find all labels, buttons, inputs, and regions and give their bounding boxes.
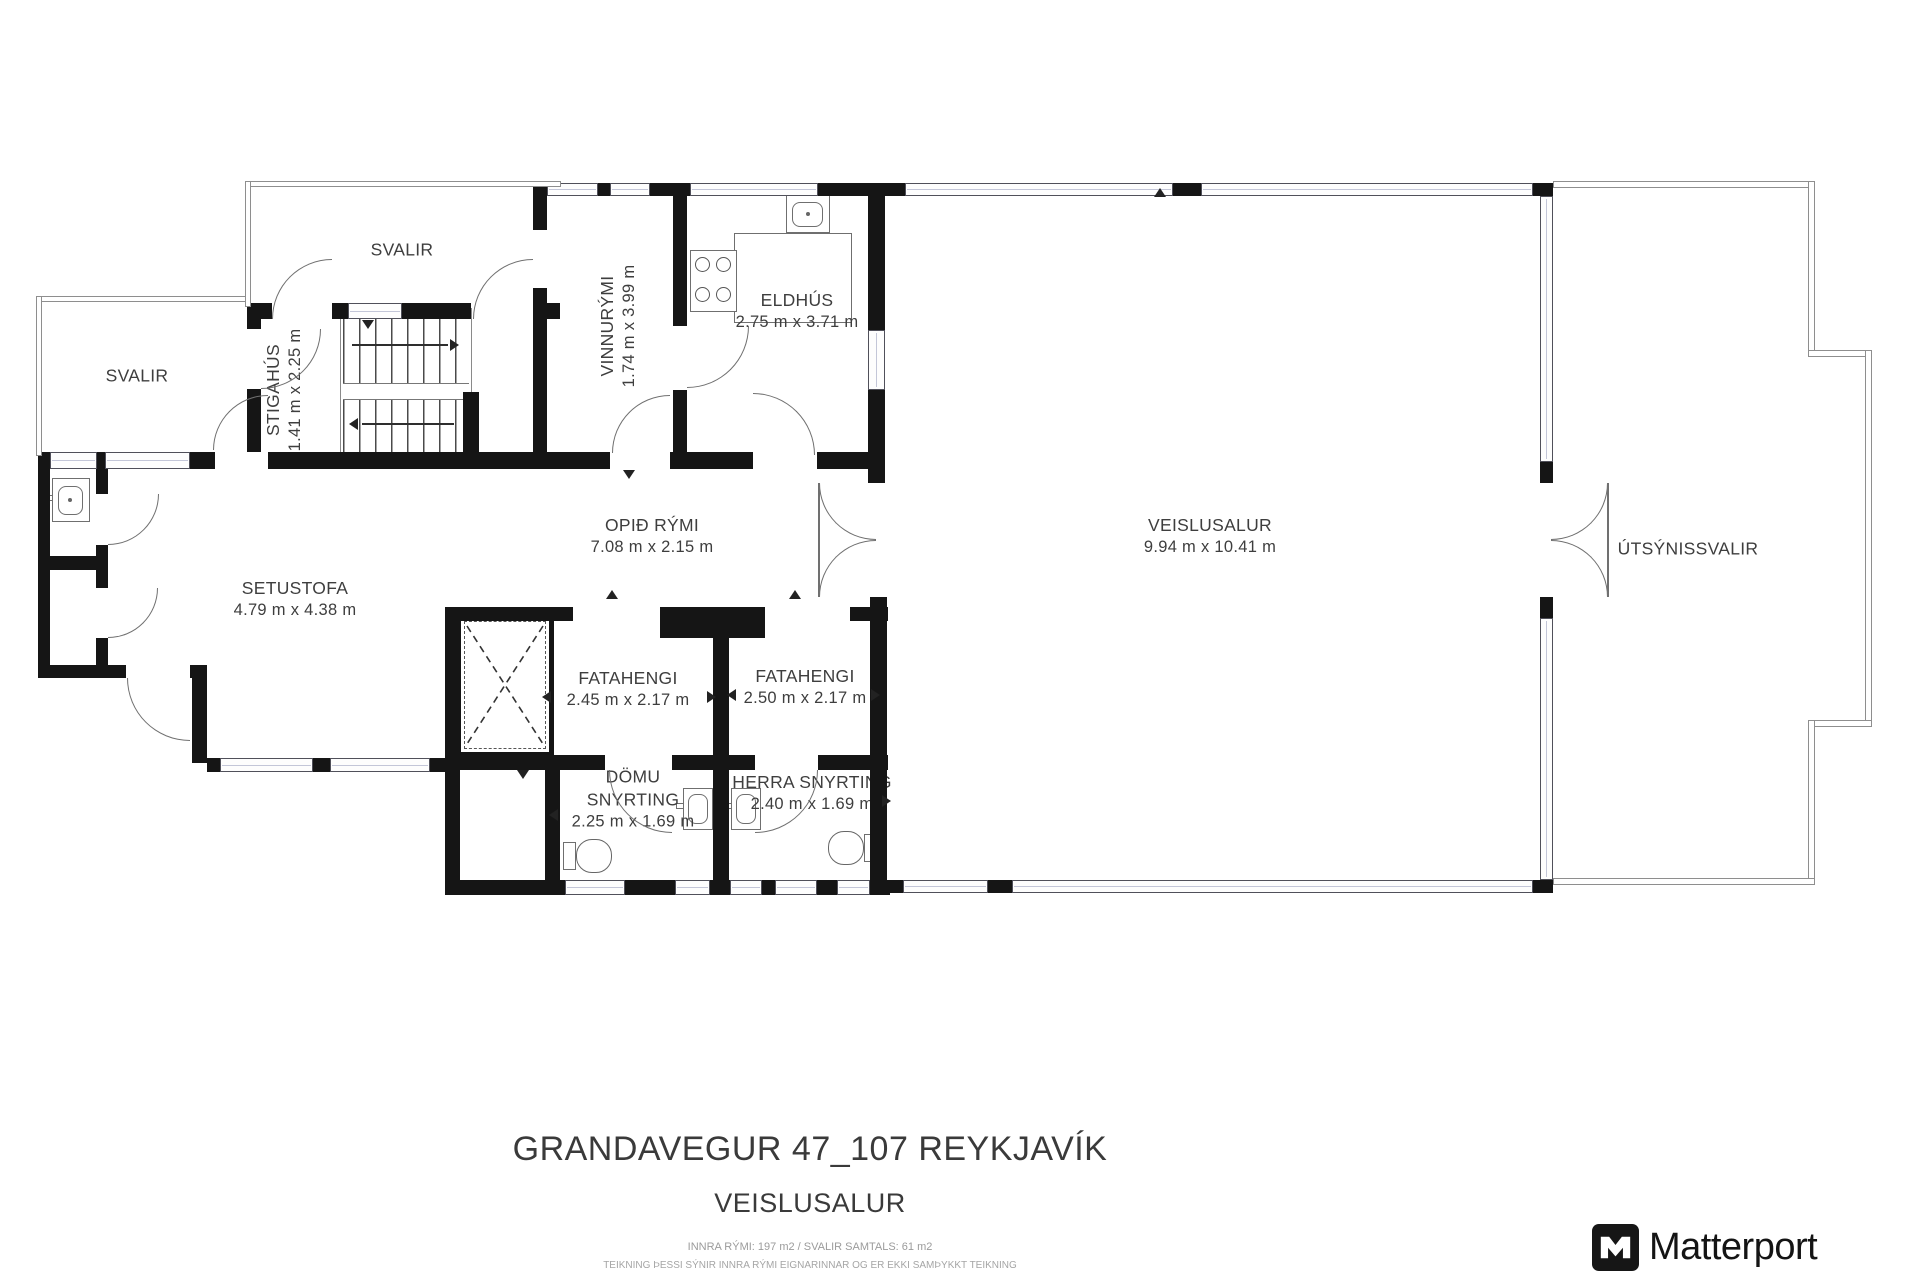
window — [348, 303, 402, 319]
wall-segment — [402, 303, 471, 319]
window — [105, 452, 190, 469]
door-arc — [755, 770, 818, 833]
direction-marker — [727, 689, 736, 701]
wall-segment — [533, 183, 547, 230]
balcony-railing — [245, 181, 251, 307]
wall-segment — [533, 319, 547, 452]
balcony-railing — [1808, 720, 1872, 727]
elevator-x-icon — [461, 618, 549, 752]
balcony-railing — [1553, 878, 1815, 885]
wall-segment — [445, 607, 573, 621]
direction-marker — [871, 689, 880, 701]
direction-marker — [789, 590, 801, 599]
wall-segment — [817, 880, 837, 895]
wall-segment — [533, 303, 560, 319]
door-arc — [272, 259, 332, 319]
wall-segment — [1173, 183, 1201, 196]
stair-treads-lower — [343, 399, 469, 454]
wall-segment — [207, 758, 220, 772]
balcony-railing — [1808, 720, 1815, 885]
wall-segment — [445, 880, 565, 895]
wall-segment — [870, 597, 887, 887]
wall-segment — [192, 678, 207, 763]
door-arc — [261, 329, 321, 389]
wall-segment — [625, 880, 675, 895]
window — [905, 183, 1173, 196]
window — [50, 452, 97, 469]
wall-segment — [268, 452, 610, 469]
door-arc — [753, 393, 815, 455]
window — [730, 880, 762, 895]
wall-segment — [533, 288, 547, 303]
ladies-toilet-icon — [576, 839, 612, 873]
window — [565, 880, 625, 895]
wall-segment — [890, 880, 903, 893]
door-leaf — [1607, 483, 1609, 597]
door-arc — [1551, 483, 1608, 540]
floor-plan: SVALIR SVALIR STIGAHÚS 1.41 m x 2.25 m V… — [0, 0, 1920, 1280]
room-label-svalir-top: SVALIR — [371, 239, 434, 262]
wall-segment — [96, 469, 108, 494]
window — [1540, 196, 1553, 462]
window — [837, 880, 870, 895]
wall-segment — [190, 452, 215, 469]
door-arc — [108, 494, 159, 545]
wall-segment — [190, 665, 207, 678]
wall-segment — [868, 469, 885, 483]
direction-marker — [517, 770, 529, 779]
direction-marker — [450, 339, 459, 351]
matterport-logo-text: Matterport — [1649, 1226, 1817, 1269]
wall-segment — [670, 452, 753, 469]
stove-icon — [690, 250, 737, 312]
matterport-logo-icon — [1592, 1224, 1639, 1271]
balcony-railing — [1553, 181, 1815, 188]
window — [330, 758, 430, 772]
room-label-eldhus: ELDHÚS 2.75 m x 3.71 m — [736, 289, 859, 333]
room-label-setustofa: SETUSTOFA 4.79 m x 4.38 m — [234, 577, 357, 621]
wall-segment — [247, 319, 261, 329]
wall-segment — [885, 183, 905, 196]
door-arc — [612, 395, 670, 453]
wall-segment — [818, 183, 885, 196]
wall-segment — [430, 758, 445, 772]
wall-segment — [868, 196, 885, 330]
window — [1201, 183, 1533, 196]
wall-segment — [713, 638, 729, 895]
wall-segment — [762, 880, 775, 895]
mens-toilet-icon — [828, 831, 864, 865]
balcony-railing — [1865, 350, 1872, 727]
direction-marker — [606, 590, 618, 599]
wall-segment — [598, 183, 610, 196]
floor-subtitle: VEISLUSALUR — [714, 1188, 906, 1219]
staircase — [340, 308, 472, 456]
balcony-railing — [1808, 350, 1872, 357]
direction-marker — [549, 809, 558, 821]
page-title: GRANDAVEGUR 47_107 REYKJAVÍK — [513, 1130, 1108, 1169]
wall-segment — [38, 469, 50, 678]
wall-segment — [1540, 462, 1553, 483]
wall-segment — [545, 755, 560, 895]
window — [1540, 618, 1553, 880]
wall-segment — [650, 183, 690, 196]
door-arc — [108, 588, 158, 638]
wall-segment — [445, 607, 460, 895]
balcony-railing — [36, 296, 42, 456]
door-arc — [819, 540, 876, 597]
wall-segment — [38, 665, 126, 678]
balcony-railing — [245, 181, 561, 187]
ladies-toilet-tank — [563, 842, 576, 870]
room-label-veislusalur: VEISLUSALUR 9.94 m x 10.41 m — [1144, 514, 1276, 558]
door-arc — [1551, 540, 1608, 597]
door-arc — [819, 483, 876, 540]
window — [775, 880, 817, 895]
direction-marker — [349, 418, 358, 430]
wall-segment — [673, 390, 687, 452]
direction-marker — [1154, 188, 1166, 197]
elevator — [456, 613, 554, 757]
direction-marker — [542, 691, 551, 703]
wall-segment — [445, 755, 605, 770]
room-label-opid-rymi: OPIÐ RÝMI 7.08 m x 2.15 m — [591, 514, 714, 558]
room-label-fatahengi-1: FATAHENGI 2.45 m x 2.17 m — [567, 667, 690, 711]
wall-segment — [1540, 597, 1553, 618]
area-summary: INNRA RÝMI: 197 m2 / SVALIR SAMTALS: 61 … — [688, 1241, 933, 1253]
balcony-railing — [1808, 181, 1815, 357]
window — [690, 183, 818, 196]
wall-segment — [868, 390, 885, 452]
disclaimer-text: TEIKNING ÞESSI SÝNIR INNRA RÝMI EIGNARIN… — [603, 1260, 1017, 1271]
wall-segment — [97, 452, 105, 469]
kitchen-sink-drain — [806, 212, 810, 216]
room-label-utsynissvalir: ÚTSÝNISSVALIR — [1618, 538, 1759, 561]
direction-marker — [623, 470, 635, 479]
window — [220, 758, 313, 772]
direction-marker — [362, 320, 374, 329]
door-arc — [127, 678, 190, 741]
room-label-vinnurymi: VINNURÝMI 1.74 m x 3.99 m — [596, 265, 640, 388]
door-arc — [473, 259, 533, 319]
wall-segment — [1533, 183, 1553, 196]
door-arc — [213, 395, 268, 450]
matterport-logo: Matterport — [1592, 1224, 1817, 1271]
balcony-railing — [36, 296, 250, 302]
wall-segment — [1533, 880, 1553, 893]
window — [868, 330, 885, 390]
window — [675, 880, 710, 895]
door-arc — [687, 326, 749, 388]
wall-segment — [673, 196, 687, 326]
wall-segment — [710, 880, 730, 895]
wall-segment — [660, 607, 765, 638]
wall-segment — [672, 755, 713, 770]
wall-segment — [96, 545, 108, 588]
direction-marker — [882, 795, 891, 807]
window — [610, 183, 650, 196]
wc-sink-drain — [68, 498, 72, 502]
wall-segment — [817, 452, 885, 469]
stair-arrow-line — [352, 344, 448, 346]
wall-segment — [463, 392, 479, 452]
wall-segment — [313, 758, 330, 772]
direction-marker — [707, 691, 716, 703]
room-label-fatahengi-2: FATAHENGI 2.50 m x 2.17 m — [744, 665, 867, 709]
room-label-svalir-left: SVALIR — [106, 365, 169, 388]
door-leaf — [818, 483, 820, 597]
stair-arrow-line — [362, 423, 454, 425]
wall-segment — [988, 880, 1012, 893]
wall-segment — [729, 755, 755, 770]
window — [1012, 880, 1533, 893]
wall-segment — [332, 303, 348, 319]
window — [903, 880, 988, 893]
